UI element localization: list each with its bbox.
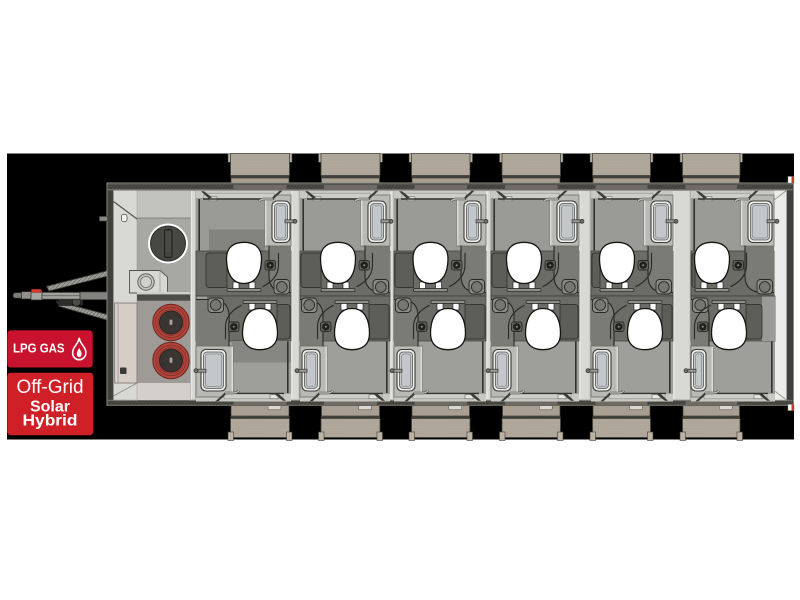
svg-text:Off-Grid: Off-Grid: [17, 377, 84, 398]
svg-text:Hybrid: Hybrid: [23, 412, 78, 429]
svg-text:LPG GAS: LPG GAS: [13, 341, 65, 356]
